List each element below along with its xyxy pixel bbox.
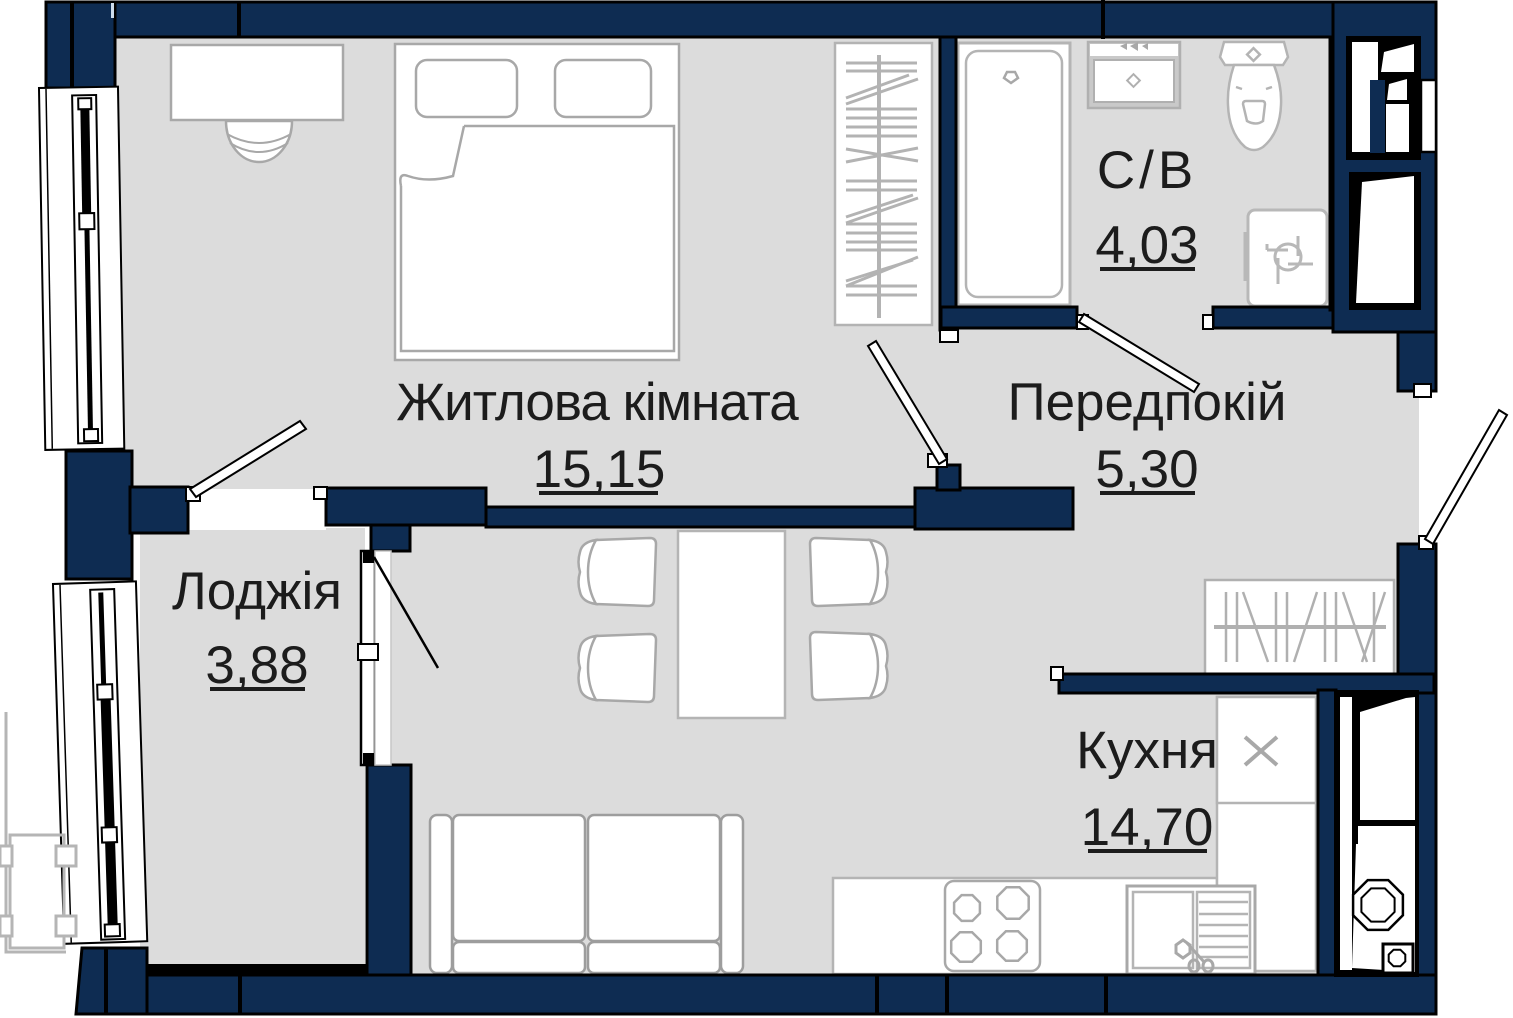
svg-text:Кухня: Кухня — [1076, 721, 1218, 780]
svg-text:Лоджія: Лоджія — [172, 562, 342, 621]
svg-text:15,15: 15,15 — [533, 440, 666, 499]
svg-text:14,70: 14,70 — [1081, 798, 1214, 857]
svg-text:Передпокій: Передпокій — [1007, 373, 1286, 432]
svg-text:5,30: 5,30 — [1095, 440, 1198, 499]
svg-text:Житлова кімната: Житлова кімната — [396, 373, 799, 432]
svg-text:3,88: 3,88 — [205, 636, 308, 695]
svg-text:4,03: 4,03 — [1095, 216, 1198, 275]
svg-text:С/В: С/В — [1097, 141, 1197, 200]
